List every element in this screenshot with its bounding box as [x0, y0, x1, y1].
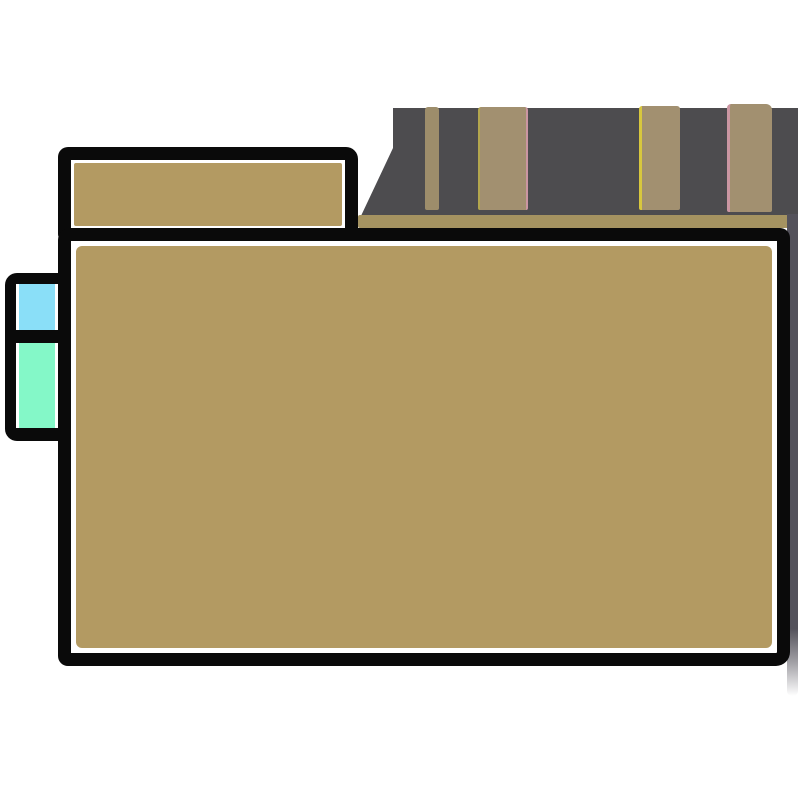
folder-tab-fill [74, 163, 342, 226]
illustration-canvas [0, 0, 800, 800]
book-spine-4 [727, 104, 772, 212]
side-tab-cyan [16, 284, 58, 330]
book-spine-3 [639, 106, 680, 210]
book-spine-1 [425, 107, 439, 210]
book-spine-2 [478, 107, 528, 210]
folder-body [58, 228, 790, 666]
shelf-edge-strip [358, 215, 790, 228]
side-tab-mint [16, 343, 58, 428]
folder-body-fill [76, 246, 772, 648]
